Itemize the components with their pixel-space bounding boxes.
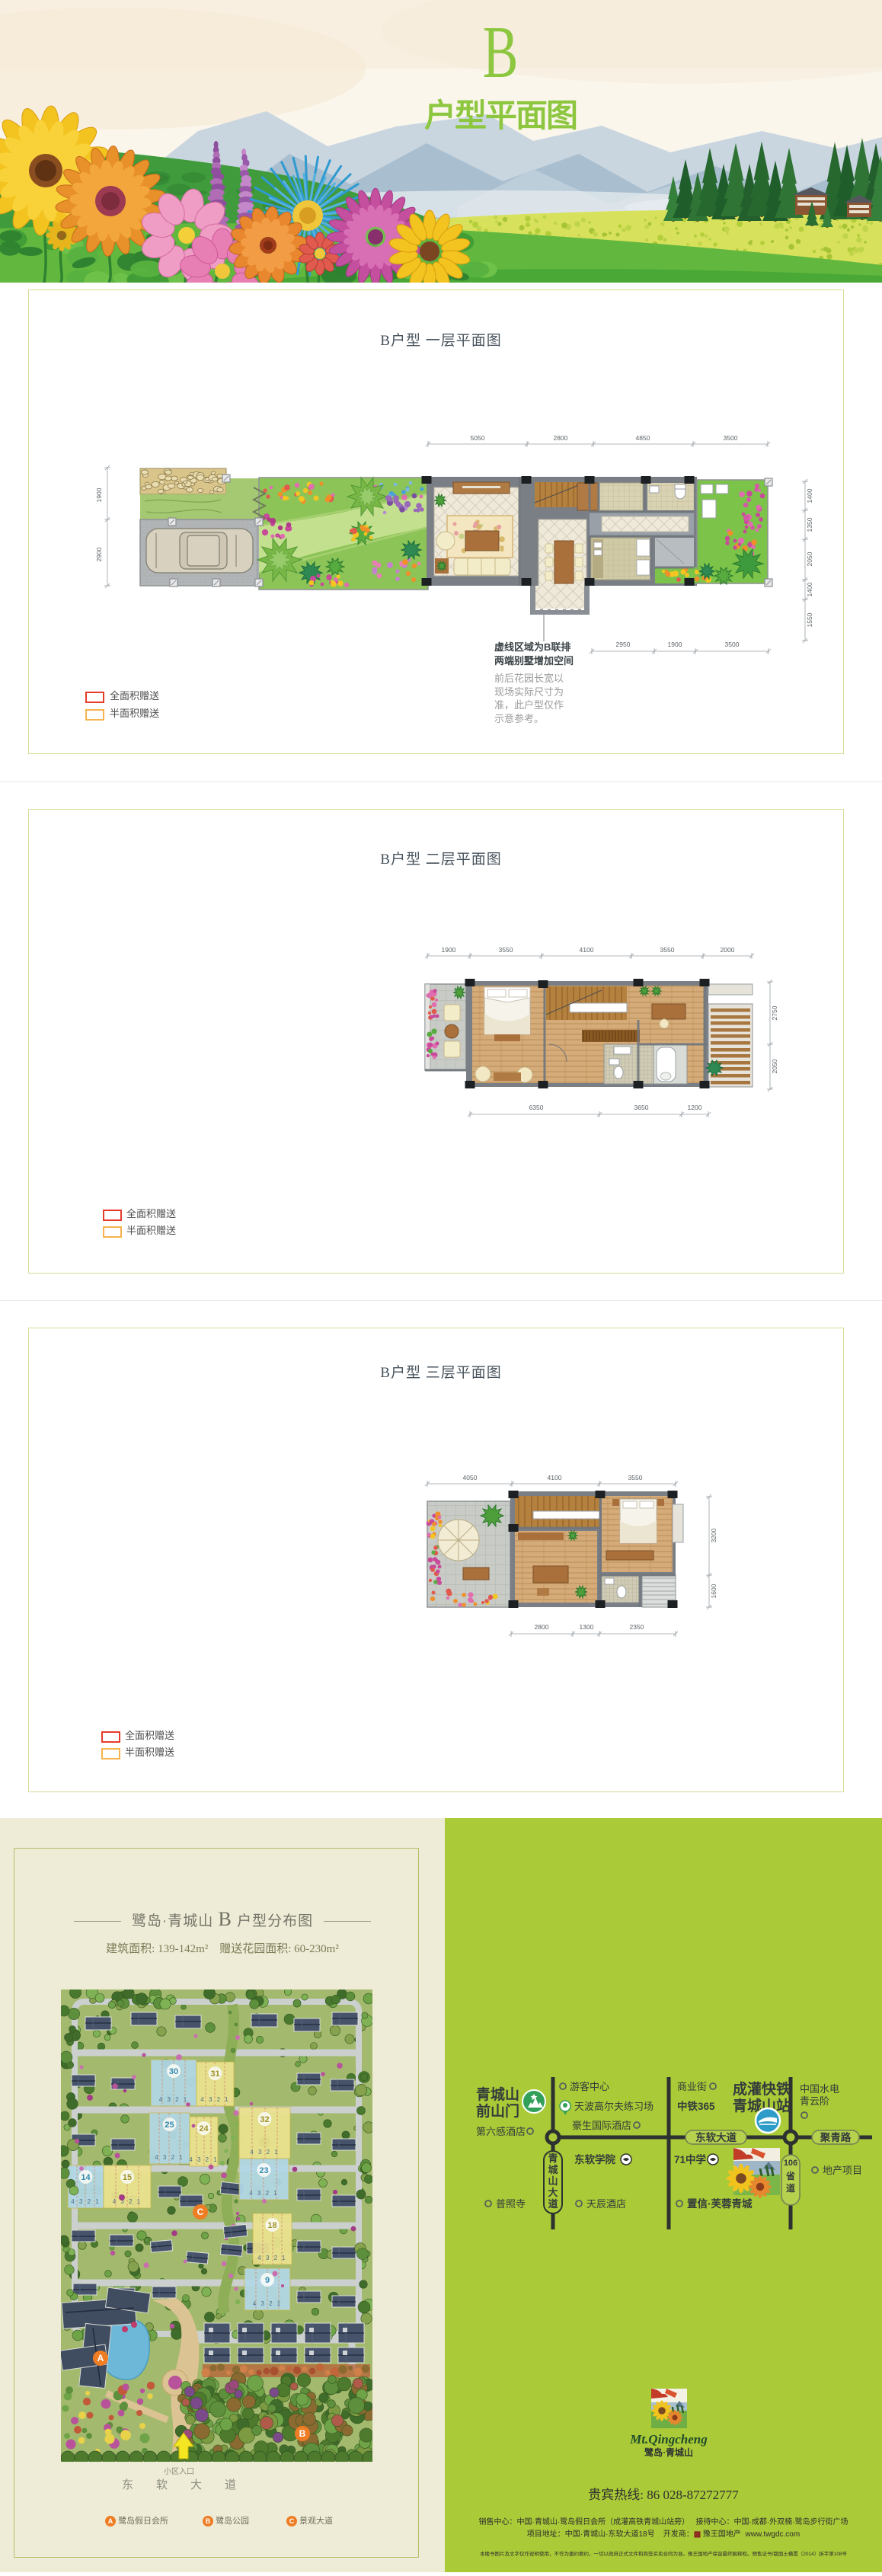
svg-text:4 3 2 1: 4 3 2 1 [189, 2156, 218, 2163]
svg-text:天辰酒店: 天辰酒店 [586, 2198, 626, 2210]
svg-text:青城山: 青城山 [476, 2085, 519, 2103]
svg-text:第六感酒店: 第六感酒店 [476, 2126, 526, 2137]
svg-text:2800: 2800 [535, 1623, 549, 1631]
svg-text:4 3 2 1: 4 3 2 1 [250, 2149, 279, 2156]
svg-text:6350: 6350 [529, 1104, 544, 1111]
svg-text:1900: 1900 [95, 487, 103, 502]
svg-text:3200: 3200 [710, 1528, 717, 1542]
svg-text:4850: 4850 [636, 434, 650, 442]
svg-text:1400: 1400 [806, 488, 813, 503]
svg-text:地产项目: 地产项目 [823, 2165, 862, 2176]
svg-text:道: 道 [786, 2182, 795, 2194]
svg-text:东软大道: 东软大道 [695, 2131, 737, 2143]
svg-text:聚青路: 聚青路 [820, 2131, 852, 2143]
svg-text:商业街: 商业街 [677, 2081, 707, 2092]
svg-text:2900: 2900 [95, 547, 103, 561]
svg-text:4 3 2 1: 4 3 2 1 [257, 2255, 286, 2261]
svg-text:山: 山 [548, 2175, 558, 2187]
svg-text:4 3 2 1: 4 3 2 1 [249, 2190, 278, 2197]
svg-text:前山门: 前山门 [476, 2102, 519, 2120]
svg-text:游客中心: 游客中心 [570, 2081, 609, 2092]
svg-text:2000: 2000 [721, 946, 735, 954]
svg-text:豪生国际酒店: 豪生国际酒店 [572, 2120, 631, 2131]
svg-text:4100: 4100 [548, 1474, 562, 1481]
svg-text:普照寺: 普照寺 [496, 2198, 526, 2210]
svg-text:鹭岛·青城山: 鹭岛·青城山 [644, 2447, 693, 2458]
svg-text:2950: 2950 [616, 641, 631, 648]
svg-text:4 3 2 1: 4 3 2 1 [155, 2154, 184, 2161]
svg-text:9: 9 [265, 2276, 270, 2285]
svg-text:25: 25 [165, 2121, 174, 2130]
svg-text:31: 31 [210, 2069, 219, 2079]
svg-text:4100: 4100 [580, 946, 594, 954]
svg-text:3650: 3650 [634, 1104, 649, 1111]
svg-text:4050: 4050 [463, 1474, 478, 1481]
svg-text:106: 106 [784, 2159, 797, 2168]
svg-text:4 3 2 1: 4 3 2 1 [253, 2300, 282, 2307]
svg-text:15: 15 [123, 2173, 132, 2182]
svg-text:B: B [299, 2428, 306, 2439]
svg-text:省: 省 [785, 2170, 795, 2181]
svg-text:1400: 1400 [806, 582, 813, 596]
svg-text:2750: 2750 [771, 1005, 778, 1020]
svg-text:2050: 2050 [771, 1059, 778, 1073]
svg-text:1350: 1350 [806, 517, 813, 532]
svg-text:3500: 3500 [724, 434, 738, 442]
svg-text:Mt.Qingcheng: Mt.Qingcheng [629, 2432, 708, 2447]
svg-text:1300: 1300 [580, 1623, 594, 1631]
svg-text:东软学院: 东软学院 [574, 2153, 615, 2165]
svg-text:城: 城 [548, 2164, 558, 2175]
svg-text:4 3 2 1: 4 3 2 1 [113, 2198, 142, 2205]
svg-text:14: 14 [81, 2173, 91, 2182]
svg-text:青: 青 [548, 2153, 558, 2164]
svg-text:2350: 2350 [630, 1623, 644, 1631]
svg-text:71中学: 71中学 [674, 2153, 707, 2165]
svg-text:C: C [197, 2207, 204, 2217]
svg-text:成灌快铁: 成灌快铁 [733, 2080, 791, 2098]
svg-text:32: 32 [260, 2115, 269, 2124]
svg-text:1900: 1900 [442, 946, 456, 954]
svg-text:1600: 1600 [710, 1584, 717, 1598]
svg-text:中国水电: 中国水电 [800, 2083, 839, 2095]
svg-text:3550: 3550 [499, 946, 513, 954]
svg-text:置信·芙蓉青城: 置信·芙蓉青城 [687, 2197, 753, 2210]
svg-text:2050: 2050 [806, 551, 813, 566]
svg-text:道: 道 [548, 2198, 558, 2210]
svg-text:18: 18 [267, 2221, 276, 2230]
svg-text:3500: 3500 [725, 641, 740, 648]
svg-text:2800: 2800 [554, 434, 568, 442]
svg-text:4 3 2 1: 4 3 2 1 [71, 2198, 100, 2205]
svg-text:24: 24 [199, 2124, 209, 2133]
svg-text:1200: 1200 [688, 1104, 702, 1111]
svg-text:天波高尔夫练习场: 天波高尔夫练习场 [574, 2101, 654, 2112]
svg-text:5050: 5050 [471, 434, 485, 442]
svg-text:1900: 1900 [668, 641, 682, 648]
svg-text:4 3 2 1: 4 3 2 1 [159, 2096, 188, 2103]
svg-text:大: 大 [548, 2187, 558, 2198]
svg-text:A: A [97, 2353, 104, 2363]
svg-text:3550: 3550 [660, 946, 675, 954]
svg-text:23: 23 [259, 2166, 268, 2175]
svg-text:30: 30 [169, 2067, 178, 2076]
svg-text:1550: 1550 [806, 612, 813, 627]
svg-text:3550: 3550 [628, 1474, 643, 1481]
svg-text:青云阶: 青云阶 [800, 2095, 829, 2107]
svg-text:中铁365: 中铁365 [677, 2100, 715, 2112]
svg-text:4 3 2 1: 4 3 2 1 [200, 2096, 229, 2103]
